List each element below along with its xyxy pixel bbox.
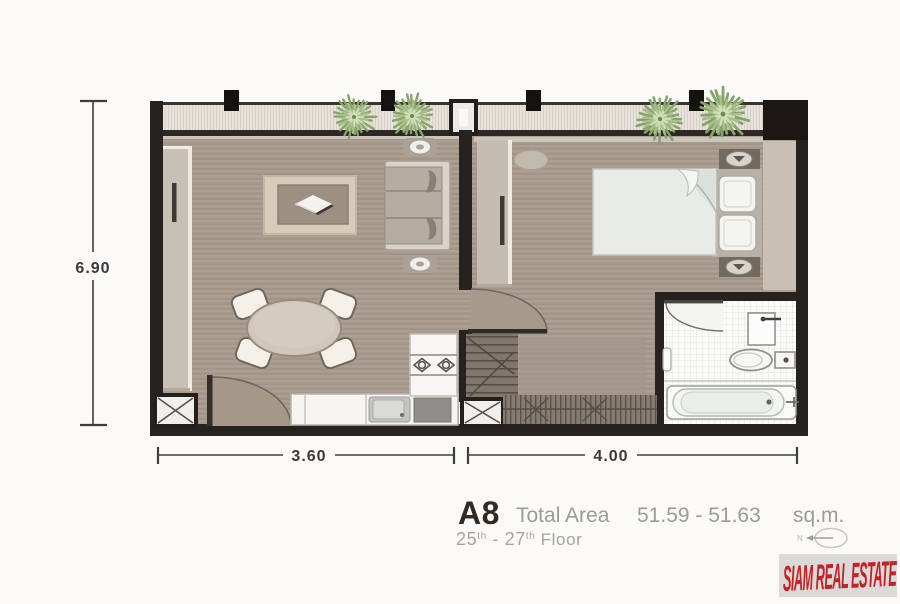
svg-text:6.90: 6.90 bbox=[75, 260, 110, 277]
svg-text:sq.m.: sq.m. bbox=[793, 504, 844, 527]
svg-text:N: N bbox=[797, 534, 803, 543]
svg-text:4.00: 4.00 bbox=[593, 448, 628, 465]
svg-text:3.60: 3.60 bbox=[291, 448, 326, 465]
svg-text:A8: A8 bbox=[458, 495, 500, 531]
svg-text:SIAM REAL ESTATE: SIAM REAL ESTATE bbox=[783, 553, 898, 599]
svg-text:25th - 27th Floor: 25th - 27th Floor bbox=[456, 529, 582, 549]
svg-text:Total Area: Total Area bbox=[516, 504, 610, 527]
svg-text:51.59 - 51.63: 51.59 - 51.63 bbox=[637, 504, 761, 527]
